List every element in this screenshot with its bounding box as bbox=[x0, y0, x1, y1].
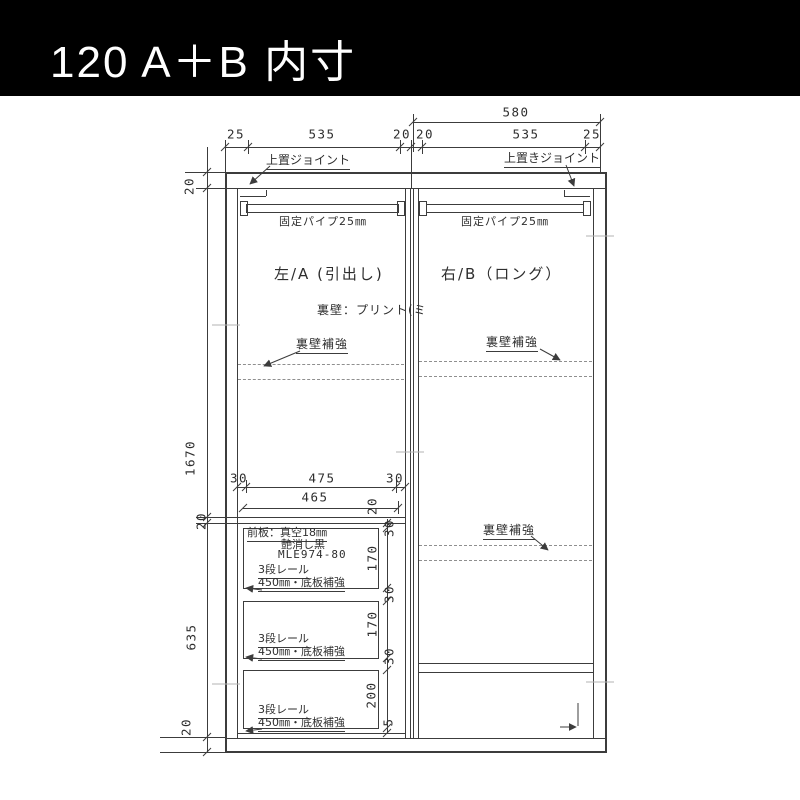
joint-bracket bbox=[240, 196, 266, 197]
dim-top-25-left: 25 bbox=[227, 127, 245, 142]
top-panel-inner-line bbox=[227, 188, 605, 189]
drawing-page: 120 A＋B 内寸 bbox=[0, 0, 800, 800]
label-back-wall: 裏壁：プリント(ミ bbox=[317, 304, 427, 318]
divider-wall-line bbox=[410, 189, 411, 738]
dim-drawer-200: 200 bbox=[364, 681, 379, 708]
hanger-pipe-right bbox=[426, 204, 584, 213]
backwall-dashed-line bbox=[419, 545, 592, 546]
dim-top-20-left: 20 bbox=[393, 127, 411, 142]
dim-inner-465: 465 bbox=[301, 490, 328, 505]
dim-drawer-30-3: 30 bbox=[382, 647, 397, 665]
dim-top-535-left: 535 bbox=[308, 127, 335, 142]
ext-line bbox=[398, 501, 399, 514]
label-backwall-reinforce-right-lower: 裏壁補強 bbox=[483, 524, 535, 540]
dim-drawer-170-1: 170 bbox=[365, 544, 380, 571]
dim-line-30-475-30 bbox=[237, 487, 405, 488]
bottom-panel-inner-line bbox=[227, 738, 605, 739]
dim-drawer-30-2: 30 bbox=[382, 585, 397, 603]
divider-wall-line bbox=[405, 189, 406, 738]
label-rail-3-sub: 450㎜・底板補強 bbox=[258, 717, 345, 732]
ext-line bbox=[600, 114, 601, 172]
joint-bracket bbox=[564, 196, 590, 197]
title-bar: 120 A＋B 内寸 bbox=[0, 0, 800, 96]
divider-wall-line bbox=[413, 189, 414, 738]
joint-bracket bbox=[564, 190, 565, 196]
ext-line bbox=[225, 140, 226, 172]
ext-line bbox=[413, 114, 414, 152]
dim-overall-580: 580 bbox=[502, 105, 529, 120]
ext-line bbox=[185, 172, 225, 173]
right-wall-inner-line bbox=[593, 189, 594, 738]
left-shelf-line bbox=[238, 523, 405, 524]
dim-top-25-right: 25 bbox=[583, 127, 601, 142]
dim-drawer-5: 5 bbox=[381, 717, 396, 726]
label-backwall-reinforce-left: 裏壁補強 bbox=[296, 338, 348, 354]
joint-bracket bbox=[266, 190, 267, 196]
label-section-right: 右/B（ロング） bbox=[441, 266, 562, 283]
label-fixed-pipe-right: 固定パイプ25㎜ bbox=[461, 216, 549, 229]
dim-line-left-column bbox=[207, 147, 208, 752]
ext-line bbox=[196, 188, 225, 189]
label-rail-1-sub: 450㎜・底板補強 bbox=[258, 577, 345, 592]
left-wall-inner-line bbox=[237, 189, 238, 738]
dim-inner-475: 475 bbox=[308, 471, 335, 486]
dim-top-535-right: 535 bbox=[512, 127, 539, 142]
page-title: 120 A＋B 内寸 bbox=[50, 26, 356, 90]
dim-left-20-top: 20 bbox=[182, 177, 197, 195]
pipe-end-cap bbox=[397, 201, 405, 216]
label-joint-right: 上置きジョイント bbox=[504, 152, 600, 168]
backwall-dashed-line bbox=[419, 376, 592, 377]
backwall-dashed-line bbox=[419, 560, 592, 561]
dim-inner-30-right: 30 bbox=[386, 471, 404, 486]
hanger-pipe-left bbox=[246, 204, 399, 213]
label-front-panel-code: MLE974-80 bbox=[278, 549, 347, 562]
label-backwall-reinforce-right-upper: 裏壁補強 bbox=[486, 336, 538, 352]
left-shelf-line bbox=[238, 517, 405, 518]
dim-top-20-right: 20 bbox=[416, 127, 434, 142]
label-section-left: 左/A (引出し) bbox=[274, 266, 384, 283]
ext-line bbox=[160, 737, 225, 738]
pipe-end-cap bbox=[583, 201, 591, 216]
dim-line-580 bbox=[413, 122, 600, 123]
dim-left-20-bottom: 20 bbox=[179, 718, 194, 736]
right-shelf-line bbox=[419, 663, 593, 664]
ext-line bbox=[422, 140, 423, 154]
divider-wall-line bbox=[418, 189, 419, 738]
ext-line bbox=[411, 140, 412, 188]
label-fixed-pipe-left: 固定パイプ25㎜ bbox=[279, 216, 367, 229]
dim-drawer-30-1: 30 bbox=[382, 519, 397, 537]
dim-left-20-shelf: 20 bbox=[194, 512, 209, 530]
backwall-dashed-line bbox=[238, 379, 404, 380]
drawer-floor-line bbox=[238, 733, 405, 734]
right-shelf-line bbox=[419, 672, 593, 673]
label-joint-left: 上置ジョイント bbox=[266, 154, 350, 170]
ext-line bbox=[248, 140, 249, 154]
dim-left-1670: 1670 bbox=[183, 440, 198, 476]
dim-line-drawer-column bbox=[387, 519, 388, 733]
ext-line bbox=[160, 752, 225, 753]
pipe-end-cap bbox=[240, 201, 248, 216]
ext-line bbox=[400, 140, 401, 154]
cabinet-outline bbox=[225, 172, 607, 753]
dim-inner-30-left: 30 bbox=[230, 471, 248, 486]
dim-left-635: 635 bbox=[184, 623, 199, 650]
dim-drawer-170-2: 170 bbox=[365, 610, 380, 637]
pipe-end-cap bbox=[419, 201, 427, 216]
backwall-dashed-line bbox=[238, 364, 404, 365]
backwall-dashed-line bbox=[419, 361, 592, 362]
dim-shelf-offset-20: 20 bbox=[365, 497, 380, 515]
label-rail-2-sub: 450㎜・底板補強 bbox=[258, 646, 345, 661]
